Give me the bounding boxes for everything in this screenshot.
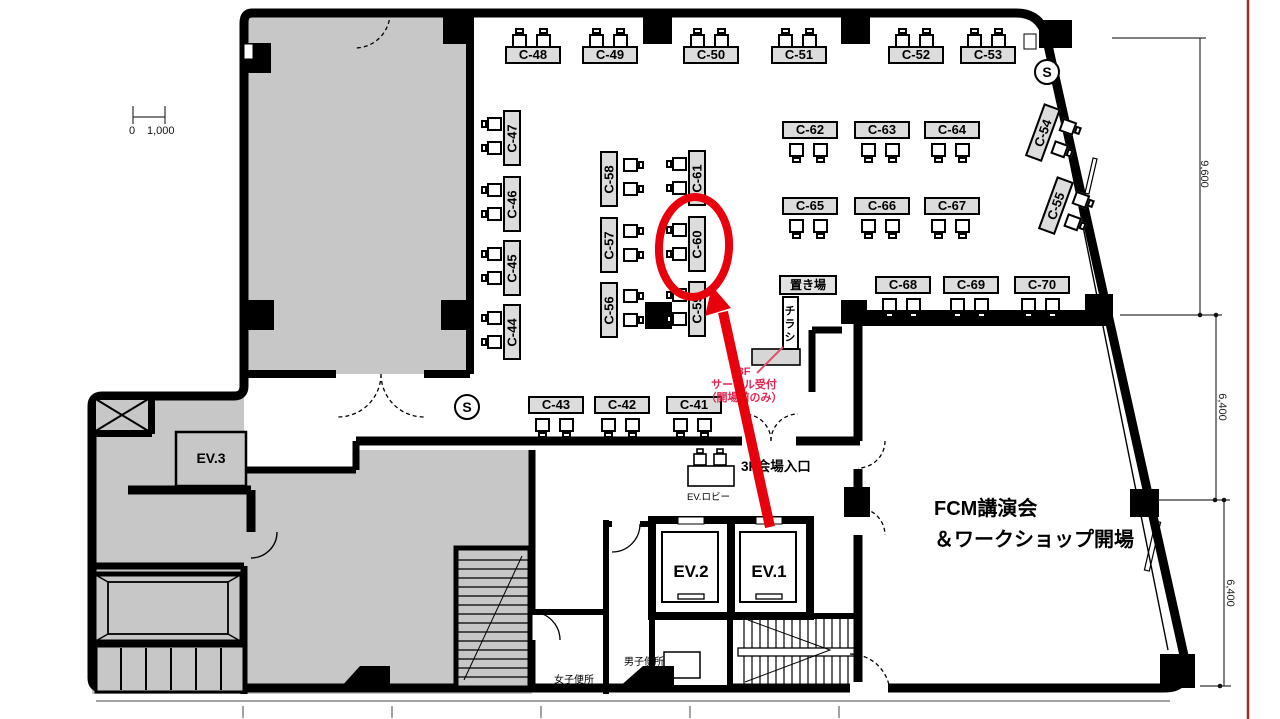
booth-label: C-66 [854,197,910,215]
booth-label: C-57 [600,217,618,273]
chair-icon [623,158,638,172]
chair-icon [672,288,687,302]
booth-label: C-62 [782,121,838,139]
stair-mark-top: S [1034,59,1060,85]
reception-note-line1: 3F [690,366,798,379]
scale-zero: 0 [129,125,135,137]
booth-label: C-58 [600,151,618,207]
booth-label: C-65 [782,197,838,215]
chair-icon [487,141,502,155]
ev-lobby-label: EV.ロビー [687,489,730,503]
booth-label: C-67 [924,197,980,215]
chair-icon [487,335,502,349]
chair-icon [974,298,989,312]
chair-icon [672,247,687,261]
ev3-label: EV.3 [176,450,246,466]
chair-icon [487,117,502,131]
chair-icon [1021,298,1036,312]
dimension-6400-mid: 6,400 [1216,387,1228,427]
chair-icon [672,181,687,195]
booth-label: C-46 [503,176,521,232]
chair-icon [955,219,970,233]
booth-label: C-43 [528,396,584,414]
chair-icon [672,157,687,171]
reception-table [752,349,800,365]
reception-note-line2: サークル受付 [690,379,798,392]
chair-icon [672,312,687,326]
booth-label: C-48 [505,46,561,64]
booth-label: C-59 [688,281,706,337]
booth-label: C-49 [582,46,638,64]
flyers-label: チラシ [782,296,799,350]
dimension-9600: 9,600 [1198,154,1210,194]
fcm-room-label-line2: ＆ワークショップ開場 [934,523,1134,552]
chair-icon [623,224,638,238]
chair-icon [813,143,828,157]
stair-mark-left: S [454,394,480,420]
chair-icon [623,313,638,327]
booth-label: C-45 [503,240,521,296]
booth-label: C-47 [503,110,521,166]
chair-icon [861,143,876,157]
chair-icon [885,219,900,233]
chair-icon [487,271,502,285]
womens-toilet-label: 女子便所 [554,671,594,686]
stairs-annex [456,548,530,688]
entrance-label: 3F会場入口 [741,455,811,475]
booth-label: C-60 [688,216,706,272]
floor-plan: C-48 C-49 C-50 C-51 C-52 C-53 C-62 C-63 … [0,0,1280,719]
booth-label: C-64 [924,121,980,139]
mens-toilet-label: 男子便所 [624,653,664,668]
storage-label: 置き場 [779,275,837,295]
chair-icon [861,219,876,233]
chair-icon [931,219,946,233]
chair-icon [623,248,638,262]
booth-label: C-50 [683,46,739,64]
ev1-label: EV.1 [732,562,806,582]
chair-icon [623,182,638,196]
chair-icon [673,418,688,432]
booth-label: C-56 [600,282,618,338]
booth-label: C-70 [1014,276,1070,294]
ev2-label: EV.2 [654,562,728,582]
booth-label: C-68 [875,276,931,294]
chair-icon [601,418,616,432]
chair-icon [955,143,970,157]
chair-icon [487,311,502,325]
dimension-6400-bottom: 6,400 [1224,573,1236,613]
chair-icon [789,143,804,157]
chair-icon [487,207,502,221]
booth-label: C-53 [960,46,1016,64]
chair-icon [697,418,712,432]
booth-label: C-63 [854,121,910,139]
chair-icon [535,418,550,432]
booth-label: C-52 [888,46,944,64]
stairs-main [731,616,858,686]
lobby-table [688,449,734,486]
chair-icon [950,298,965,312]
chair-icon [813,219,828,233]
walls-layer [0,0,1280,719]
booth-label: C-44 [503,304,521,360]
fcm-room-label-line1: FCM講演会 [934,492,1037,521]
scale-value: 1,000 [147,125,175,137]
chair-icon [1045,298,1060,312]
reception-note: 3F サークル受付 （開場前のみ） [690,366,798,405]
chair-icon [789,219,804,233]
chair-icon [882,298,897,312]
booth-label: C-61 [688,150,706,206]
chair-icon [885,143,900,157]
chair-icon [487,183,502,197]
chair-icon [559,418,574,432]
chair-icon [625,418,640,432]
chair-icon [906,298,921,312]
reception-note-line3: （開場前のみ） [690,392,798,405]
booth-label: C-42 [594,396,650,414]
booth-label: C-69 [943,276,999,294]
chair-icon [931,143,946,157]
booth-label: C-51 [771,46,827,64]
chair-icon [672,223,687,237]
chair-icon [487,247,502,261]
chair-icon [623,289,638,303]
